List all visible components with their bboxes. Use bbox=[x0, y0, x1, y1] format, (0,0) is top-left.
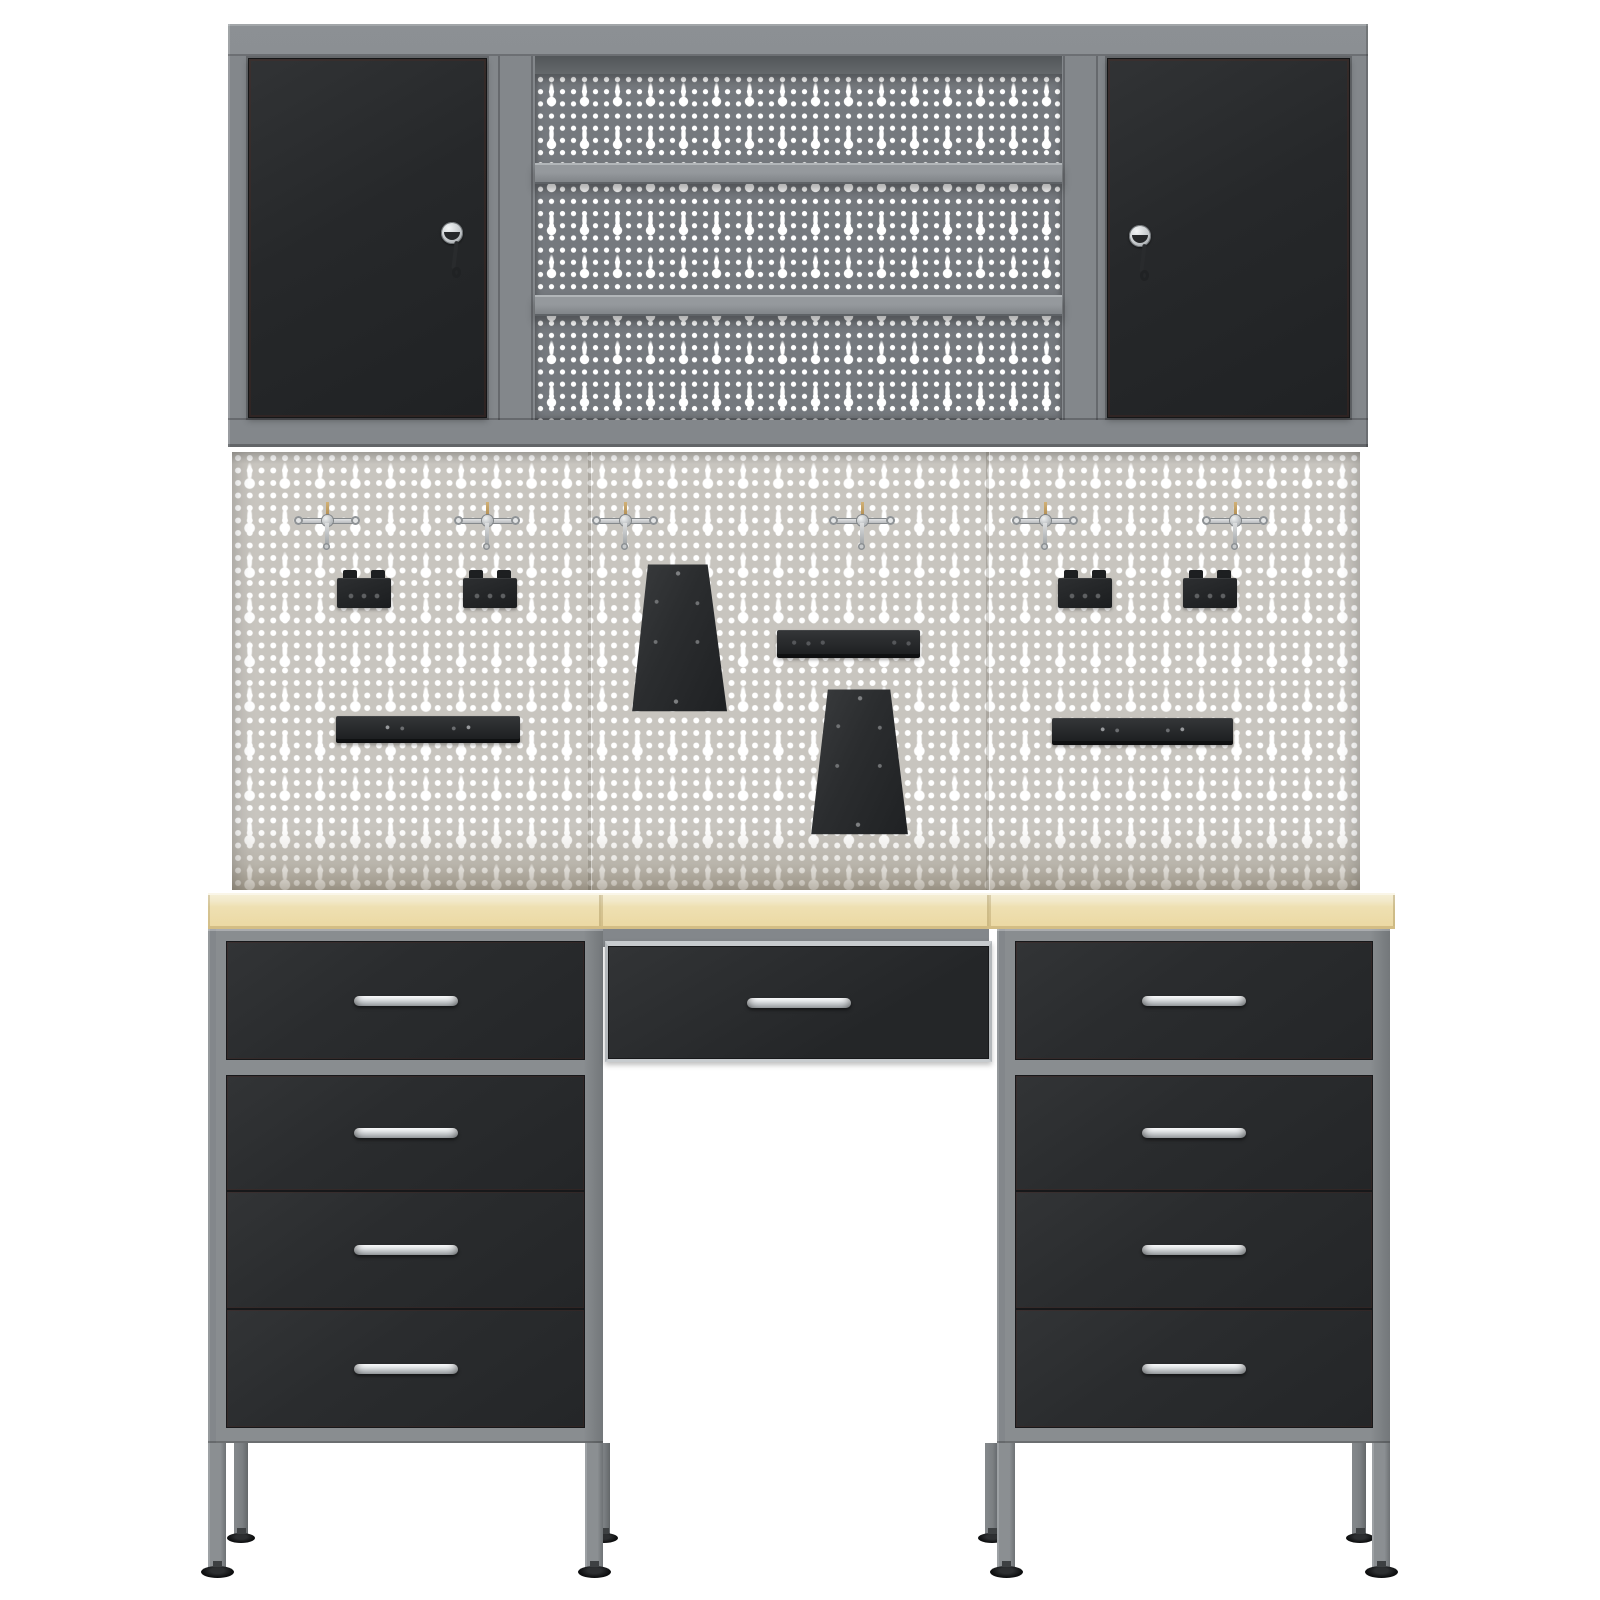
tool-bracket-1 bbox=[337, 570, 391, 608]
tool-bracket-3 bbox=[1058, 570, 1112, 608]
pegboard-panel-seam-1 bbox=[588, 452, 591, 890]
drawer-handle bbox=[1142, 1245, 1246, 1255]
key-shaft bbox=[1139, 244, 1146, 272]
left-pedestal-back-left-foot bbox=[227, 1533, 255, 1543]
tool-rail-small bbox=[777, 630, 920, 658]
hook-drop-pin bbox=[1043, 523, 1047, 546]
right-pedestal-front-left-leg bbox=[997, 1443, 1015, 1568]
tool-bracket-4 bbox=[1183, 570, 1237, 608]
drawer-left-4 bbox=[226, 1309, 585, 1428]
right-pedestal-back-right-leg bbox=[1352, 1443, 1366, 1535]
hook-drop-pin bbox=[860, 523, 864, 546]
pegboard-hook-2 bbox=[456, 502, 518, 552]
shelf-unit-pegboard-back bbox=[535, 74, 1062, 420]
lock-cylinder bbox=[441, 222, 463, 244]
tool-bracket-2 bbox=[463, 570, 517, 608]
drawer-handle bbox=[1142, 1128, 1246, 1138]
drawer-right-3 bbox=[1015, 1191, 1373, 1309]
pegboard-hook-3 bbox=[594, 502, 656, 552]
left-pedestal-back-left-leg bbox=[234, 1443, 248, 1535]
drawer-left-3 bbox=[226, 1191, 585, 1309]
drawer-handle bbox=[354, 1245, 458, 1255]
bracket-body bbox=[1183, 578, 1237, 608]
left-pedestal-front-left-foot bbox=[201, 1566, 234, 1578]
hook-drop-pin bbox=[325, 523, 329, 546]
worktop-segment-right bbox=[989, 893, 1395, 929]
center-drawer bbox=[605, 941, 992, 1062]
hook-drop-pin bbox=[1233, 523, 1237, 546]
frame-pillar-seam-2 bbox=[531, 56, 533, 420]
pegboard-hook-1 bbox=[296, 502, 358, 552]
drawer-right-4 bbox=[1015, 1309, 1373, 1428]
bracket-body bbox=[1058, 578, 1112, 608]
pegboard-hook-6 bbox=[1204, 502, 1266, 552]
frame-pillar-seam-4 bbox=[1096, 56, 1098, 420]
right-pedestal-front-right-foot bbox=[1365, 1566, 1398, 1578]
worktop-segment-center bbox=[601, 893, 989, 929]
drawer-right-1 bbox=[1015, 941, 1373, 1060]
workbench-product-render bbox=[0, 0, 1600, 1600]
wall-shelf-lower bbox=[535, 295, 1062, 316]
left-pedestal-front-left-leg bbox=[208, 1443, 226, 1568]
right-pedestal-front-right-leg bbox=[1372, 1443, 1390, 1568]
drawer-handle bbox=[1142, 1364, 1246, 1374]
drawer-left-1 bbox=[226, 941, 585, 1060]
drawer-handle bbox=[1142, 996, 1246, 1006]
drawer-handle bbox=[747, 998, 851, 1008]
bracket-body bbox=[463, 578, 517, 608]
right-pedestal-back-right-foot bbox=[1346, 1533, 1374, 1543]
wall-shelf-upper bbox=[535, 163, 1062, 184]
wall-unit-bottom-edge-line bbox=[228, 418, 1368, 420]
right-door-lock-with-key bbox=[1129, 225, 1151, 283]
pegboard-hook-4 bbox=[831, 502, 893, 552]
frame-pillar-seam-1 bbox=[498, 56, 500, 420]
pegboard-panel-seam-2 bbox=[986, 452, 989, 890]
right-pedestal-front-left-foot bbox=[990, 1566, 1023, 1578]
tool-rail-right bbox=[1052, 718, 1233, 745]
tool-rail-left bbox=[336, 716, 520, 743]
drawer-right-2 bbox=[1015, 1075, 1373, 1191]
drawer-handle bbox=[354, 996, 458, 1006]
key-shaft bbox=[451, 241, 458, 269]
key-bow bbox=[1140, 270, 1149, 281]
left-door-lock-with-key bbox=[441, 222, 463, 280]
bracket-body bbox=[337, 578, 391, 608]
left-pedestal-front-right-leg bbox=[585, 1443, 603, 1568]
hook-drop-pin bbox=[485, 523, 489, 546]
key-bow bbox=[452, 267, 461, 278]
worktop-segment-left bbox=[208, 893, 601, 929]
drawer-handle bbox=[354, 1128, 458, 1138]
drawer-left-2 bbox=[226, 1075, 585, 1191]
left-pedestal-front-right-foot bbox=[578, 1566, 611, 1578]
lock-cylinder bbox=[1129, 225, 1151, 247]
hook-drop-pin bbox=[623, 523, 627, 546]
pegboard-hook-5 bbox=[1014, 502, 1076, 552]
drawer-handle bbox=[354, 1364, 458, 1374]
main-pegboard bbox=[232, 452, 1360, 890]
frame-pillar-seam-3 bbox=[1063, 56, 1065, 420]
